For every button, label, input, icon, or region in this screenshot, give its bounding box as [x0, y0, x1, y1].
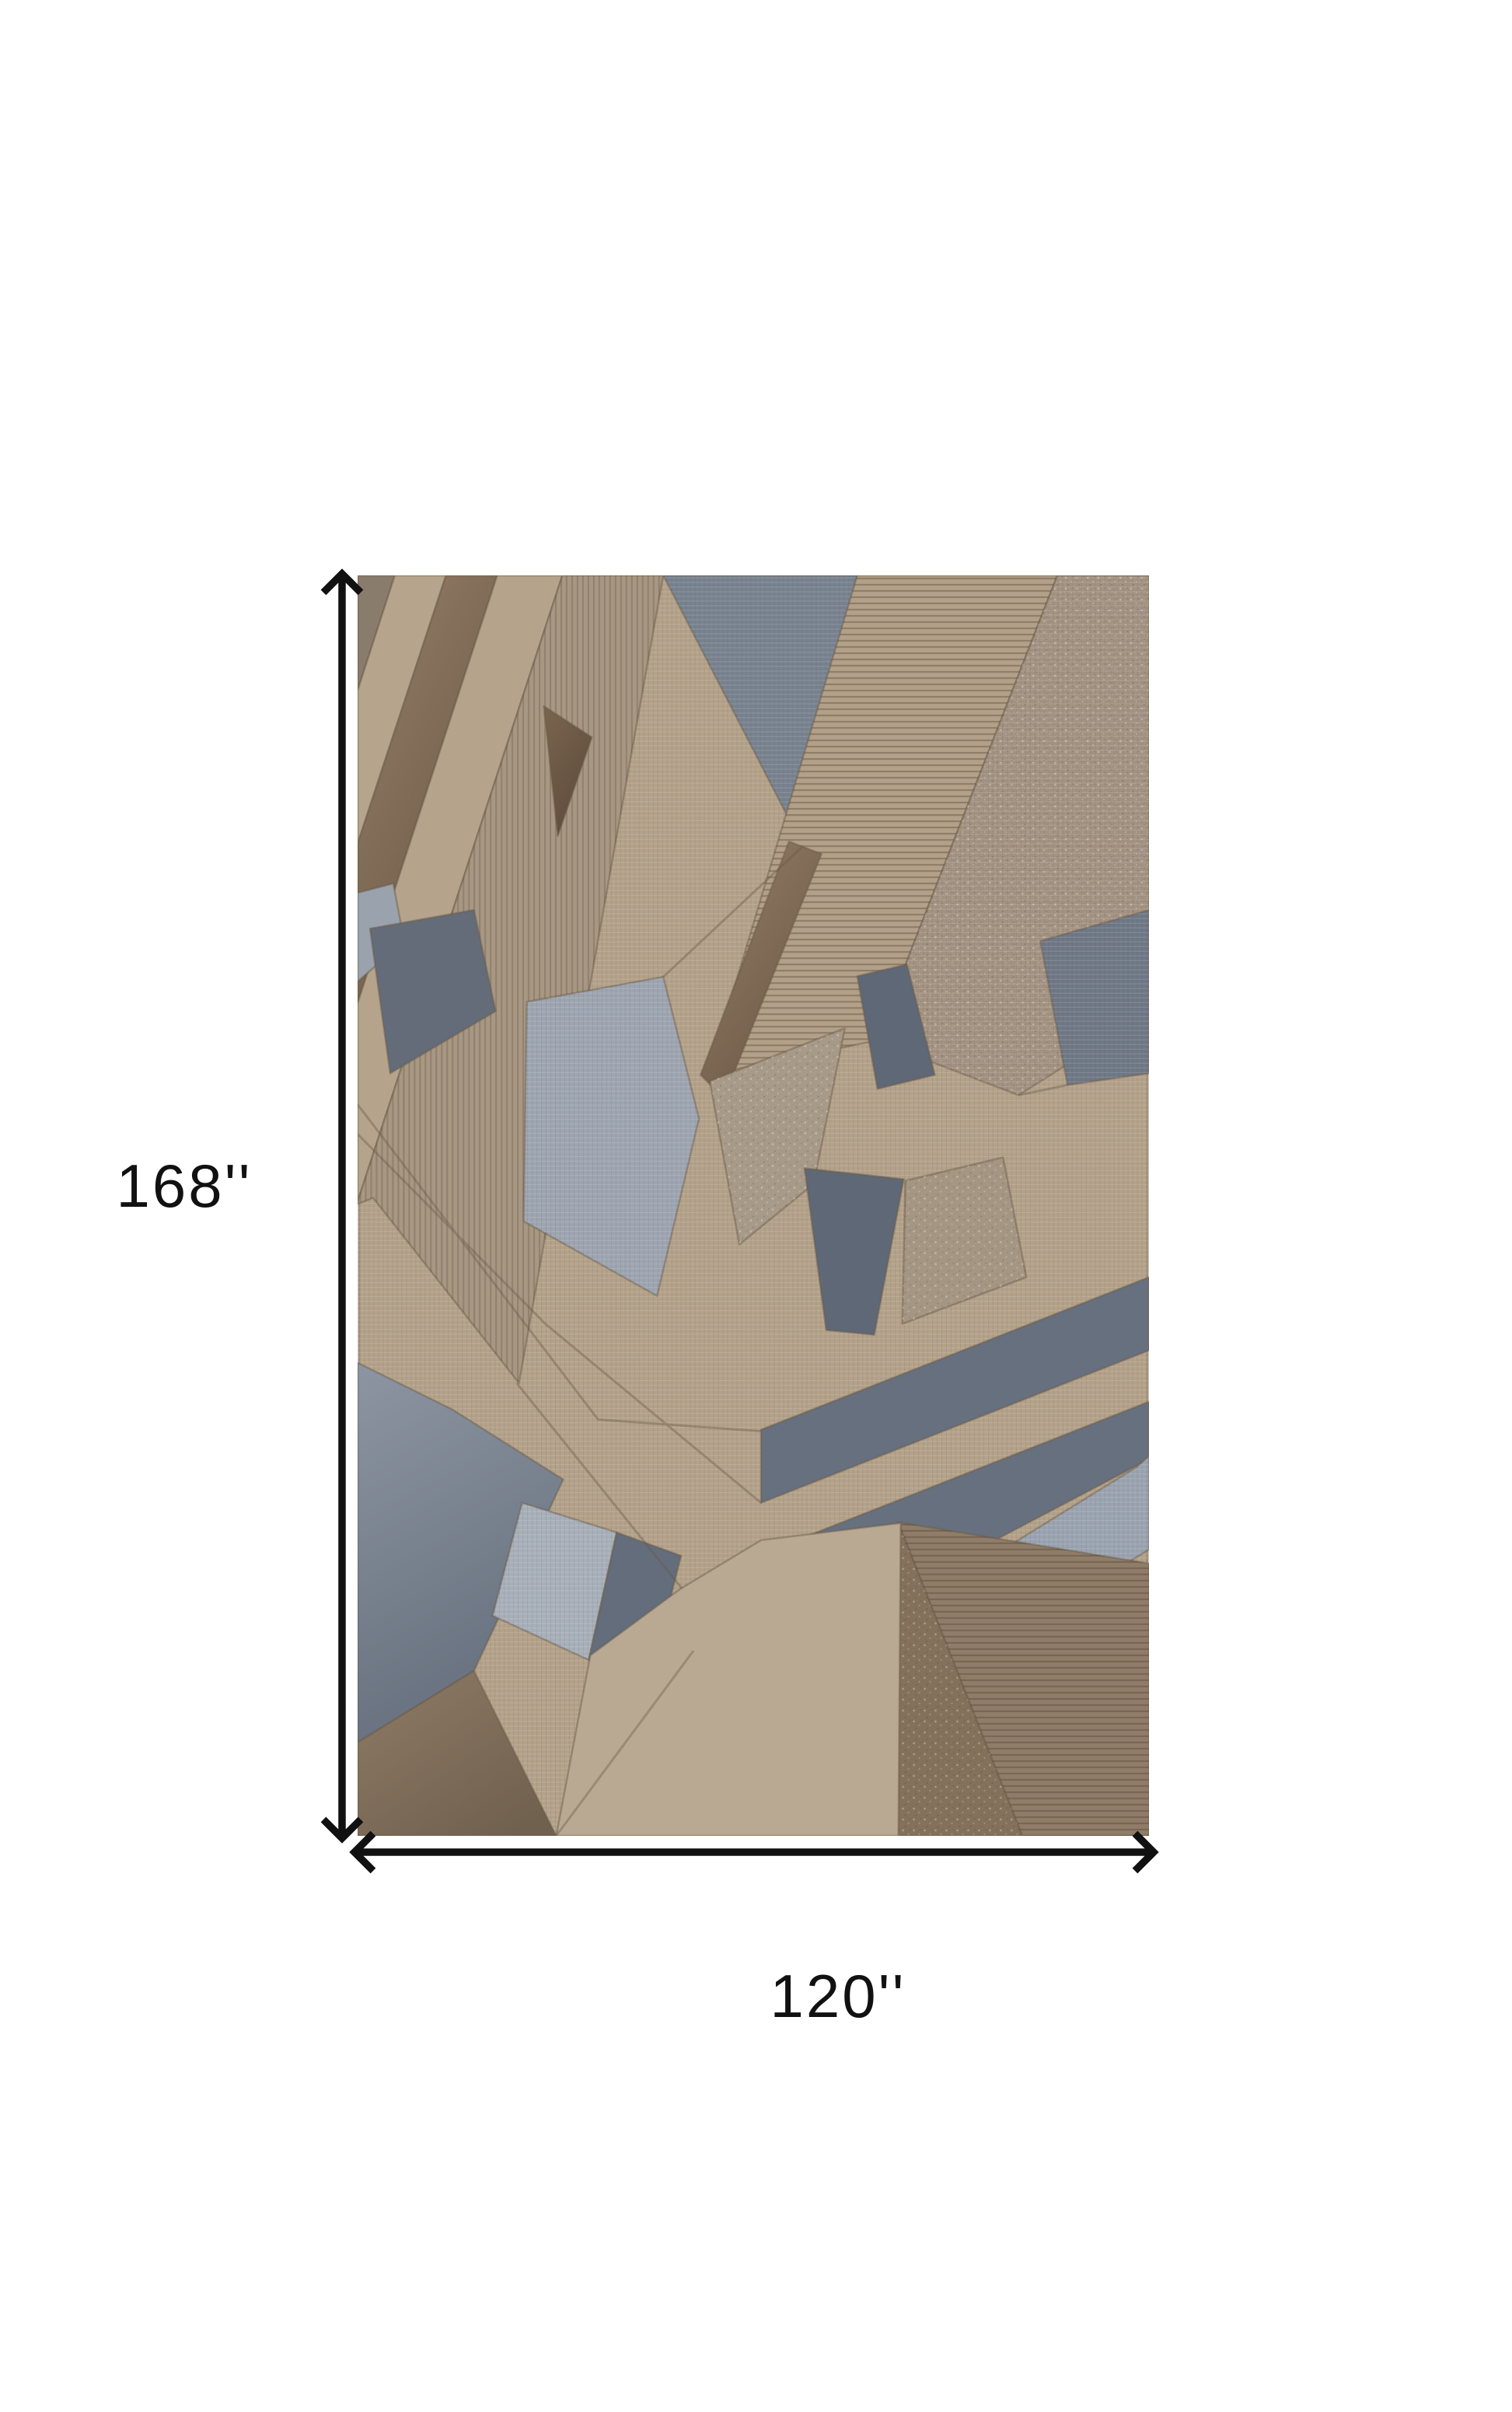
width-dimension-arrow: [347, 1830, 1161, 1874]
page-canvas: 168'' 120'': [0, 0, 1512, 2412]
width-label: 120'': [770, 1966, 906, 2026]
rug-image: [358, 575, 1149, 1836]
height-label: 168'': [117, 1155, 253, 1216]
height-dimension-arrow: [319, 566, 365, 1846]
